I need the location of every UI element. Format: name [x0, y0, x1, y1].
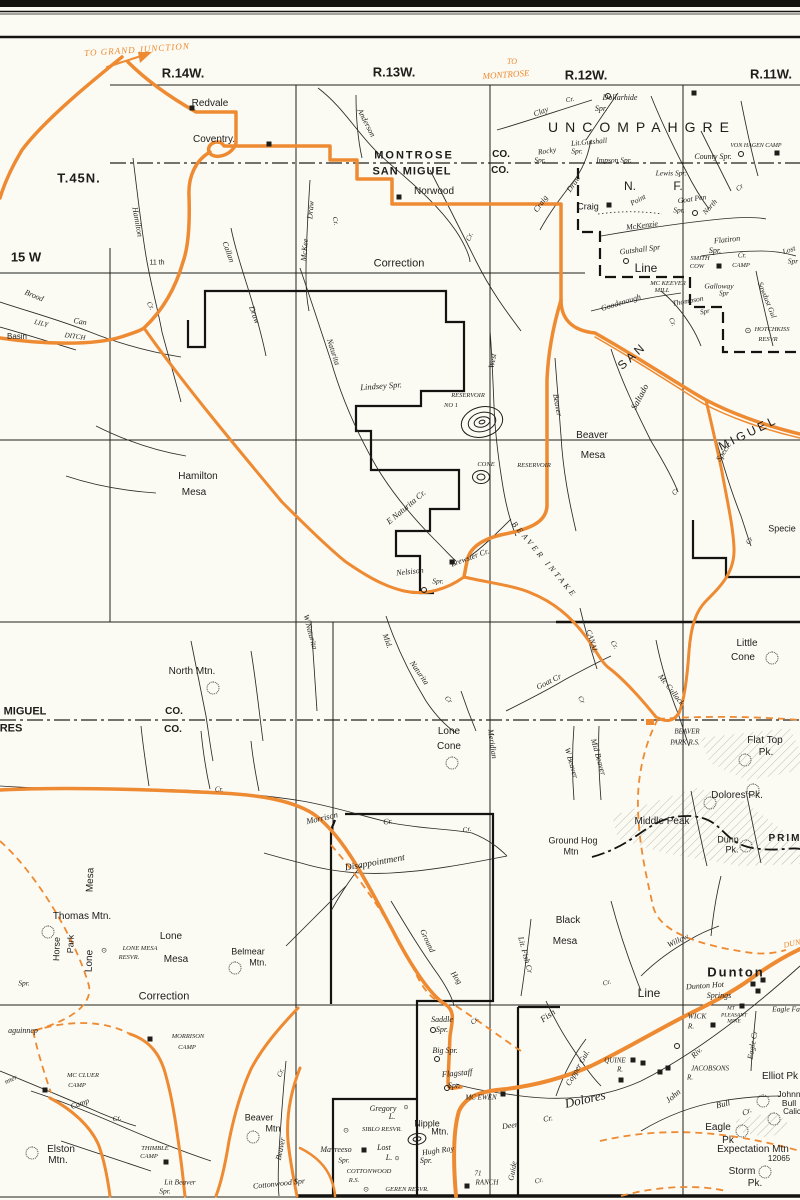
map-label: CONE: [477, 462, 494, 469]
map-label: Redvale: [192, 99, 229, 109]
map-label: Basin: [7, 333, 27, 341]
map-label: RESERVOIR: [517, 463, 551, 470]
building-icon: [761, 978, 766, 983]
map-label: Impson Spr.: [596, 156, 631, 164]
map-label: 15 W: [11, 251, 41, 264]
mountain-peak-icon: [757, 1095, 770, 1108]
map-label: Ground Hog: [548, 837, 597, 846]
map-label: RESVR: [758, 337, 777, 344]
map-label: Lewis Spr.: [656, 169, 687, 177]
spring-icon: [421, 587, 427, 593]
map-label: Spr.: [571, 147, 582, 155]
map-label: RESVR.: [119, 955, 140, 962]
map-label: Cr.: [215, 787, 223, 794]
map-label: SAN MIGUEL: [372, 167, 451, 178]
map-label: Elliot Pk: [762, 1072, 798, 1082]
map-label: Mtn.: [48, 1156, 67, 1166]
map-label: Pk.: [759, 748, 773, 758]
map-label: Correction: [139, 992, 190, 1003]
map-label: CAMP: [178, 1045, 196, 1052]
map-label: Spr.: [338, 1156, 349, 1164]
map-label: JACOBSONS: [691, 1066, 729, 1073]
building-icon: [397, 195, 402, 200]
mountain-peak-icon: [229, 962, 242, 975]
map-label: CAMP: [140, 1154, 158, 1161]
map-label: RES: [0, 724, 22, 735]
map-label: Saddle: [431, 1016, 453, 1024]
spring-icon: [738, 151, 744, 157]
spring-icon: [434, 1056, 440, 1062]
map-label: ⊙: [343, 1128, 349, 1135]
map-label: SIBLO RESVR.: [362, 1127, 402, 1134]
building-icon: [658, 1070, 663, 1075]
map-label: Line: [638, 987, 661, 999]
building-icon: [607, 203, 612, 208]
map-label: R.: [688, 1022, 694, 1030]
map-label: Middle Peak: [634, 817, 689, 827]
building-icon: [148, 1037, 153, 1042]
spring-icon: [674, 1043, 680, 1049]
ranger-station-flag-icon: [646, 719, 654, 725]
mountain-peak-icon: [759, 1166, 772, 1179]
map-label: THIMBLE: [141, 1146, 168, 1153]
mountain-peak-icon: [747, 784, 760, 797]
map-label: Spr.: [420, 1157, 432, 1165]
mountain-peak-icon: [736, 1125, 749, 1138]
map-label: PRIM: [769, 834, 800, 844]
map-label: R.14W.: [162, 67, 205, 80]
map-label: Mavreeso: [320, 1146, 351, 1154]
map-label: ⊙: [745, 327, 752, 335]
building-icon: [190, 106, 195, 111]
map-label: Lone: [85, 950, 96, 973]
map-label: Draw: [306, 201, 316, 220]
map-label: R.: [617, 1067, 623, 1074]
building-icon: [692, 91, 697, 96]
map-label: Mesa: [86, 868, 97, 893]
map-label: Hamilton: [178, 472, 217, 482]
building-icon: [164, 1160, 169, 1165]
map-label: SMITH: [690, 256, 709, 263]
map-label: Black: [556, 916, 580, 926]
map-label: CAMP: [68, 1083, 86, 1090]
map-canvas: TO GRAND JUNCTIONR.14W.R.13W.TOMONTROSER…: [0, 0, 800, 1200]
map-label: Lost: [377, 1144, 391, 1152]
map-label: Dunn: [717, 836, 739, 845]
map-label: Lone: [438, 727, 460, 737]
building-icon: [450, 560, 455, 565]
map-label: Lit Beaver: [164, 1178, 195, 1186]
map-label: Horse: [52, 937, 62, 961]
map-label: Spr.: [595, 105, 607, 113]
mountain-peak-icon: [740, 840, 753, 853]
map-label: Cr.: [331, 216, 340, 226]
map-label: Pk.: [748, 1179, 762, 1189]
mountain-peak-icon: [766, 652, 779, 665]
map-label: Big Spr.: [432, 1047, 457, 1055]
map-label: MINE: [727, 1019, 740, 1025]
map-label: Spr.: [709, 247, 721, 255]
building-icon: [43, 1088, 48, 1093]
map-label: Spr.: [18, 979, 29, 987]
map-label: MONTROSE: [374, 151, 454, 162]
building-icon: [631, 1058, 636, 1063]
map-label: CO.: [164, 725, 182, 735]
map-label: Spr.: [534, 156, 545, 164]
map-label: Dunton: [707, 966, 764, 979]
map-label: Spr: [788, 257, 798, 265]
mountain-peak-icon: [739, 754, 752, 767]
map-label: aguinnep: [8, 1027, 38, 1035]
map-label: CO.: [491, 166, 509, 176]
mountain-peak-icon: [42, 926, 55, 939]
map-label: ⊙: [403, 1105, 408, 1111]
map-label: TO: [507, 58, 517, 66]
map-label: COW: [690, 264, 704, 271]
map-label: Beaver: [576, 431, 608, 441]
spring-icon: [430, 1027, 436, 1033]
building-icon: [267, 142, 272, 147]
map-label: Craig: [577, 203, 599, 212]
mountain-peak-icon: [768, 1113, 781, 1126]
map-label: Mtn.: [249, 959, 267, 968]
map-label: MILL: [655, 288, 670, 295]
map-label: Cone: [731, 653, 755, 663]
building-icon: [756, 989, 761, 994]
map-label: Mesa: [164, 955, 188, 965]
building-icon: [666, 1066, 671, 1071]
map-label: Little: [736, 639, 757, 649]
spring-icon: [605, 93, 611, 99]
map-label: Springs: [707, 992, 731, 1000]
map-label: MC EWEN: [465, 1095, 496, 1102]
mountain-peak-icon: [704, 797, 717, 810]
map-label: Spr.: [673, 206, 684, 214]
map-label: Mesa: [182, 488, 206, 498]
map-label: R.11W.: [750, 68, 792, 81]
spring-icon: [623, 258, 629, 264]
building-icon: [751, 982, 756, 987]
map-label: Mtn: [563, 848, 578, 857]
map-label: Eagle Fa: [772, 1005, 800, 1013]
map-label: RESERVOIR: [451, 393, 485, 400]
map-label: Storm: [729, 1167, 756, 1177]
mountain-peak-icon: [247, 1131, 260, 1144]
map-label: Mesa: [553, 937, 577, 947]
building-icon: [641, 1061, 646, 1066]
building-icon: [711, 1023, 716, 1028]
building-icon: [465, 1184, 470, 1189]
map-label: Spr.: [432, 577, 443, 585]
map-label: MC CLUER: [67, 1073, 99, 1080]
map-label: Bull: [782, 1099, 796, 1108]
map-label: LONE MESA: [123, 946, 158, 953]
map-label: CO.: [492, 150, 510, 160]
map-label: CO.: [165, 707, 183, 717]
map-label: Eagle: [705, 1123, 731, 1133]
map-label: Coventry.: [193, 135, 235, 145]
map-label: Correction: [374, 259, 425, 270]
boundary-lines: [188, 168, 800, 1196]
map-label: Spr: [719, 291, 729, 298]
map-label: RANCH: [476, 1180, 499, 1187]
map-label: Spr.: [159, 1187, 170, 1195]
map-label: CAMP: [732, 263, 750, 270]
map-label: Mtn.: [431, 1128, 449, 1137]
map-label: Elston: [47, 1145, 75, 1155]
map-label: 11 th: [149, 260, 164, 267]
map-label: F.: [673, 180, 682, 192]
map-label: Line: [635, 262, 658, 274]
map-label: ⊙: [363, 1187, 369, 1194]
map-label: QUINE: [604, 1058, 625, 1065]
map-label: Thomas Mtn.: [53, 912, 111, 922]
map-label: MIGUEL: [4, 707, 47, 718]
map-label: Mtn: [265, 1125, 280, 1134]
map-label: NO 1: [444, 403, 458, 410]
map-label: MORRISON: [172, 1034, 205, 1041]
map-label: PARK R.S.: [670, 740, 700, 747]
building-icon: [501, 1092, 506, 1097]
spring-icon: [444, 1085, 450, 1091]
map-label: L.: [386, 1154, 392, 1162]
map-label: N.: [624, 180, 636, 192]
map-label: ⊙: [394, 1156, 399, 1162]
map-label: Pk.: [725, 846, 738, 855]
building-icon: [717, 264, 722, 269]
map-label: Spr.: [436, 1026, 448, 1034]
map-label: T.45N.: [57, 172, 101, 185]
map-label: Calic: [783, 1108, 800, 1116]
mountain-peak-icon: [446, 757, 459, 770]
map-label: ⊙: [101, 948, 107, 955]
building-icon: [362, 1148, 367, 1153]
spring-icon: [692, 210, 698, 216]
map-label: Specie: [768, 525, 796, 534]
map-label: Lone: [160, 932, 182, 942]
map-label: R.13W.: [373, 66, 416, 79]
map-label: 71: [475, 1171, 482, 1178]
building-icon: [775, 151, 780, 156]
map-label: L.: [389, 1113, 395, 1121]
map-label: BEAVER: [674, 729, 699, 736]
mountain-peak-icon: [207, 682, 220, 695]
map-label: Norwood: [414, 187, 454, 197]
map-label: Cr.: [383, 818, 393, 827]
map-margin-bars: [0, 0, 800, 37]
map-label: R.S.: [349, 1178, 359, 1185]
map-label: 12065: [768, 1155, 790, 1163]
map-label: Belmear: [231, 948, 265, 957]
reservoir-contours: [407, 402, 506, 1146]
map-label: R.: [687, 1075, 693, 1082]
map-label: Cr.: [738, 253, 746, 260]
map-label: UNCOMPAHGRE: [548, 120, 736, 134]
map-label: GEREN RESVR.: [385, 1187, 428, 1194]
map-label: Cone: [437, 742, 461, 752]
map-label: Beaver: [245, 1114, 274, 1123]
map-label: County Spr.: [694, 153, 731, 161]
map-label: North Mtn.: [169, 667, 216, 677]
map-label: Park: [66, 935, 76, 954]
map-label: MT: [727, 1006, 735, 1012]
building-icon: [740, 1004, 745, 1009]
map-label: COTTONWOOD: [347, 1169, 392, 1176]
map-label: Cr.: [543, 1114, 554, 1124]
map-label: R.12W.: [565, 69, 608, 82]
map-label: HOTCHKISS: [754, 327, 789, 334]
map-label: WICK: [688, 1012, 707, 1020]
mountain-peak-icon: [26, 1147, 39, 1160]
map-label: VON HAGEN CAMP: [730, 143, 781, 149]
map-label: Flat Top: [747, 736, 782, 746]
map-label: Mesa: [581, 451, 605, 461]
building-icon: [619, 1078, 624, 1083]
